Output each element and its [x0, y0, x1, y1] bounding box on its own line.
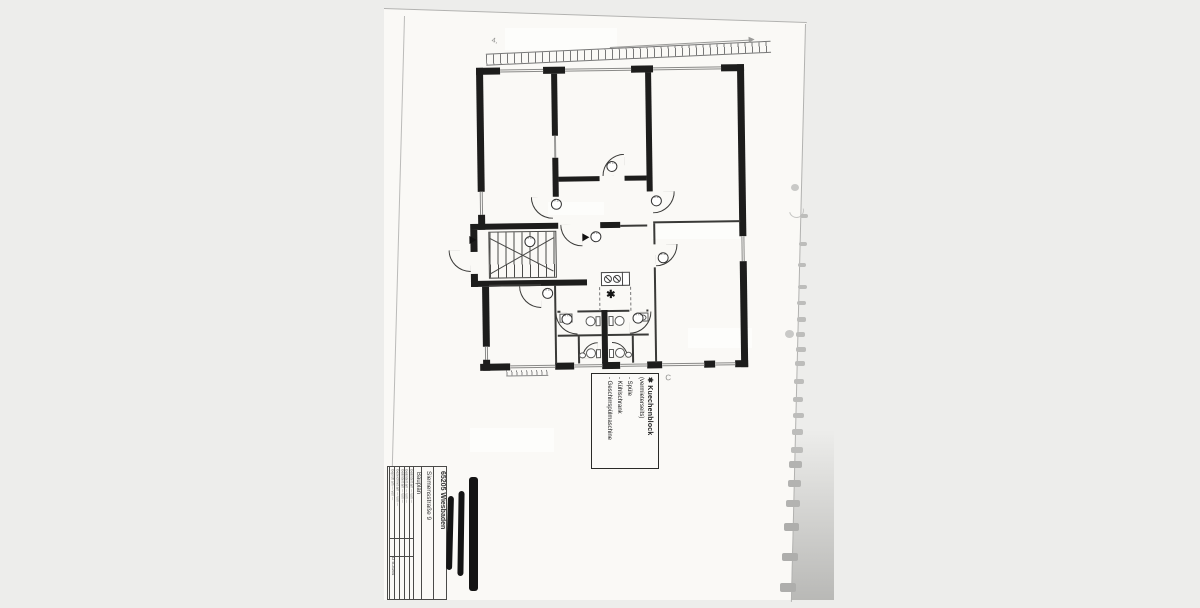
- floor-plan: 4, C: [0, 0, 1200, 608]
- wall: [554, 286, 557, 364]
- window: [565, 68, 631, 72]
- wall: [653, 223, 655, 244]
- title-block-line: [413, 467, 414, 600]
- title-block-line: [421, 467, 422, 600]
- wall: [555, 363, 574, 370]
- wall: [704, 361, 715, 368]
- redaction-bar: [469, 477, 478, 591]
- punch-hole-icon: [785, 330, 794, 338]
- wall: [625, 175, 647, 180]
- binder-mark: [795, 361, 805, 366]
- wall: [645, 72, 653, 191]
- door-tag: 88 198: [632, 313, 643, 324]
- wall: [737, 64, 746, 236]
- dashed-line: [630, 287, 631, 311]
- wall: [559, 176, 600, 182]
- title-block-row: Gezeichnet am — von —: [394, 469, 398, 557]
- wall: [608, 333, 649, 336]
- binder-mark: [780, 583, 796, 592]
- door-arc: [519, 286, 541, 308]
- sink-basin-icon: [625, 352, 632, 358]
- title-block-line: [433, 467, 434, 600]
- burner-icon: [604, 275, 612, 283]
- title-block-doc-type: Bauplan: [415, 472, 421, 594]
- redaction-bar: [457, 491, 464, 576]
- handwritten-mark: 4,: [491, 37, 498, 45]
- window: [715, 362, 735, 365]
- wall: [735, 360, 748, 367]
- wall: [601, 310, 608, 363]
- entrance-arrow-icon: [469, 236, 476, 244]
- sink-basin-icon: [579, 352, 586, 358]
- toilet-icon: [615, 348, 625, 358]
- binder-mark: [793, 413, 804, 418]
- door-arc: [560, 224, 582, 246]
- binder-mark: [796, 347, 806, 352]
- scanned-floor-plan-page: 4, C: [0, 0, 1200, 600]
- title-block-drawing-no: D 5.3164: [390, 557, 395, 596]
- toilet-tank-icon: [608, 316, 613, 326]
- wall: [632, 336, 634, 363]
- wall: [653, 220, 740, 223]
- door-tag: 88 198: [590, 231, 601, 242]
- legend-title: ✱ Kuechenblock: [645, 377, 654, 465]
- kitchen-asterisk-symbol: ✱: [606, 288, 615, 301]
- door-tag: 88 198: [542, 288, 553, 299]
- binder-mark: [799, 242, 807, 246]
- railing-ticks: [506, 370, 548, 377]
- title-block-row: Geändert am — von —: [404, 469, 408, 557]
- binder-mark: [794, 379, 804, 384]
- legend-item: - Spüle: [624, 377, 634, 465]
- door-arc: [449, 250, 471, 272]
- burner-icon: [613, 275, 621, 283]
- binder-mark: [788, 480, 801, 487]
- door-arc: [531, 197, 553, 219]
- binder-mark: [786, 500, 800, 507]
- dashed-line: [599, 287, 600, 311]
- binder-mark: [784, 523, 799, 531]
- binder-mark: [792, 429, 803, 435]
- wall-opening: [554, 136, 556, 158]
- binder-mark: [782, 553, 798, 561]
- door-tag: 88 198: [551, 199, 562, 210]
- wall: [740, 261, 748, 367]
- toilet-tank-icon: [596, 349, 601, 358]
- toilet-icon: [614, 316, 624, 326]
- wall: [476, 68, 485, 192]
- window: [574, 364, 602, 367]
- toilet-icon: [585, 316, 595, 326]
- window: [500, 69, 543, 73]
- entrance-arrow-icon: [582, 233, 589, 241]
- asterisk-symbol: ✱: [646, 377, 653, 383]
- title-block-row: Geändert am — von —: [409, 469, 413, 557]
- window: [662, 363, 704, 367]
- binder-mark: [798, 285, 807, 289]
- wall: [483, 360, 490, 371]
- binder-mark: [793, 397, 803, 402]
- legend-item: - Geschirrspülmaschine: [604, 377, 614, 465]
- door-tag: 88 198: [524, 236, 535, 247]
- arrowhead-icon: [748, 36, 754, 42]
- binder-mark: [789, 461, 802, 468]
- door-tag: 88 198: [651, 195, 662, 206]
- title-block-row: Geändert am — von —: [399, 469, 403, 557]
- legend-text: ✱ Kuechenblock (vermieterseits) - Spüle …: [597, 377, 654, 465]
- title-block-street: Siemensstraße 9: [425, 471, 432, 593]
- title-block-city: 65205 Wiesbaden: [439, 471, 446, 593]
- wall: [482, 287, 490, 347]
- wall: [470, 223, 558, 230]
- legend-subtitle: (vermieterseits): [637, 377, 645, 465]
- binder-mark: [800, 214, 808, 218]
- binder-mark: [797, 301, 806, 305]
- window: [653, 66, 721, 70]
- window: [485, 347, 488, 360]
- title-block-row: Geprüft am — von —: [389, 469, 393, 557]
- wall: [578, 336, 580, 363]
- window: [510, 365, 555, 369]
- binder-mark: [796, 332, 805, 337]
- toilet-tank-icon: [595, 316, 600, 326]
- wall: [654, 267, 657, 362]
- legend-item: - Kühlschrank: [614, 377, 624, 465]
- binder-mark: [797, 317, 806, 322]
- window: [480, 192, 483, 215]
- toilet-tank-icon: [609, 349, 614, 358]
- window: [741, 236, 744, 261]
- wall: [600, 222, 620, 228]
- door-tag: 88 198: [561, 314, 572, 325]
- wall: [551, 74, 558, 136]
- door-tag: 88 198: [606, 161, 617, 172]
- kitchen-divider: [622, 272, 623, 286]
- punch-hole-icon: [791, 184, 799, 191]
- handwritten-letter-c: C: [665, 373, 671, 382]
- window: [620, 363, 647, 366]
- wall: [620, 224, 647, 226]
- binder-mark: [791, 447, 803, 453]
- toilet-icon: [586, 348, 596, 358]
- door-tag: 88 198: [658, 252, 669, 263]
- binder-mark: [798, 263, 806, 267]
